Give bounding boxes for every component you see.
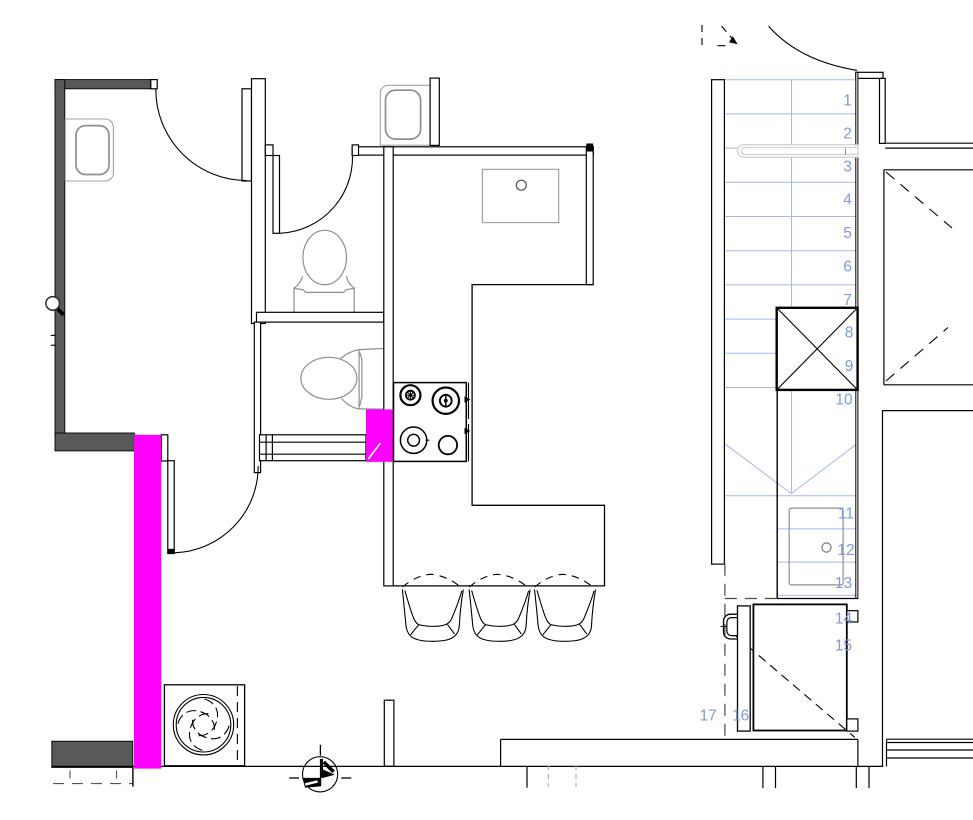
- svg-text:3: 3: [843, 159, 852, 176]
- svg-text:11: 11: [838, 506, 854, 523]
- svg-text:10: 10: [835, 392, 853, 409]
- svg-text:16: 16: [732, 708, 749, 725]
- svg-text:6: 6: [843, 259, 852, 276]
- svg-text:13: 13: [835, 575, 852, 592]
- svg-text:8: 8: [845, 325, 854, 342]
- svg-text:2: 2: [843, 126, 852, 143]
- svg-text:4: 4: [843, 192, 852, 209]
- svg-text:5: 5: [843, 225, 852, 242]
- svg-text:12: 12: [837, 542, 854, 559]
- svg-text:7: 7: [843, 292, 852, 309]
- svg-text:1: 1: [843, 93, 852, 110]
- svg-text:9: 9: [845, 358, 854, 375]
- svg-text:14: 14: [835, 611, 853, 628]
- svg-text:17: 17: [700, 708, 717, 725]
- svg-text:15: 15: [835, 638, 852, 655]
